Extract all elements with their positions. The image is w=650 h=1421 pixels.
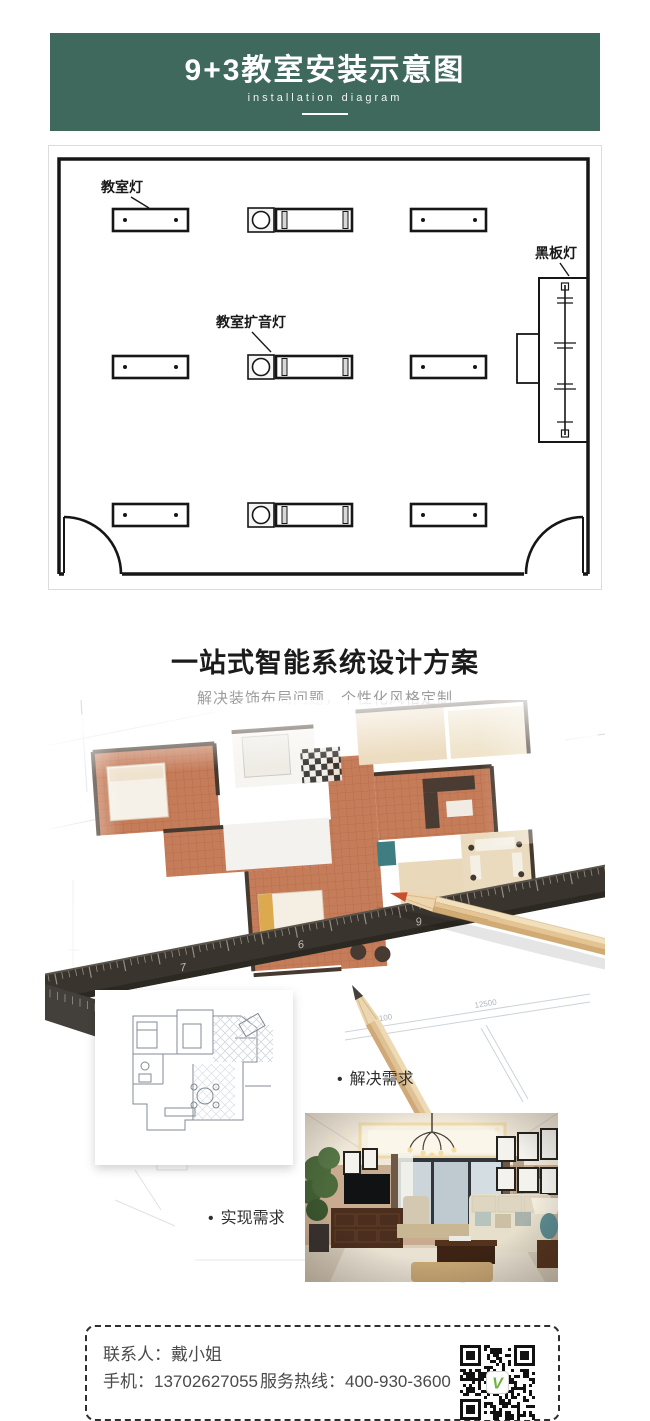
amplifier-lights — [248, 208, 352, 527]
blackboard-light-label: 黑板灯 — [535, 245, 577, 261]
contact-mobile: 手机：13702627055 — [103, 1367, 258, 1392]
classroom-light-label: 教室灯 — [101, 179, 143, 195]
header-banner: 9+3教室安装示意图 installation diagram — [50, 33, 600, 131]
leader-line — [252, 332, 271, 352]
page-title: 9+3教室安装示意图 — [50, 33, 600, 88]
leader-line — [131, 197, 149, 208]
living-room-photo — [298, 1113, 561, 1282]
classroom-diagram: 教室灯 教室扩音灯 黑板灯 — [49, 146, 601, 589]
floorplan-card — [95, 990, 293, 1165]
blackboard-light-fixture — [517, 278, 588, 442]
bullet-solve-label: •解决需求 — [337, 1070, 414, 1088]
leader-line — [560, 263, 569, 276]
bullet-realize-label: •实现需求 — [208, 1209, 285, 1227]
header-underline — [302, 113, 348, 115]
qr-logo-letter: V — [492, 1376, 504, 1393]
contact-person: 联系人：戴小姐 — [103, 1340, 222, 1365]
qr-code: V — [460, 1345, 535, 1420]
header-subtitle: installation diagram — [50, 92, 600, 104]
diagram-labels: 教室灯 教室扩音灯 黑板灯 — [101, 179, 577, 352]
design-montage: 5100 12500 — [45, 700, 605, 1300]
contact-hotline: 服务热线：400-930-3600 — [260, 1367, 451, 1392]
dim-label: 12500 — [474, 998, 498, 1010]
door-arc-right — [526, 517, 583, 574]
classroom-diagram-card: 教室灯 教室扩音灯 黑板灯 — [48, 145, 602, 590]
design-title: 一站式智能系统设计方案 — [0, 641, 650, 680]
amplifier-light-label: 教室扩音灯 — [216, 314, 286, 330]
